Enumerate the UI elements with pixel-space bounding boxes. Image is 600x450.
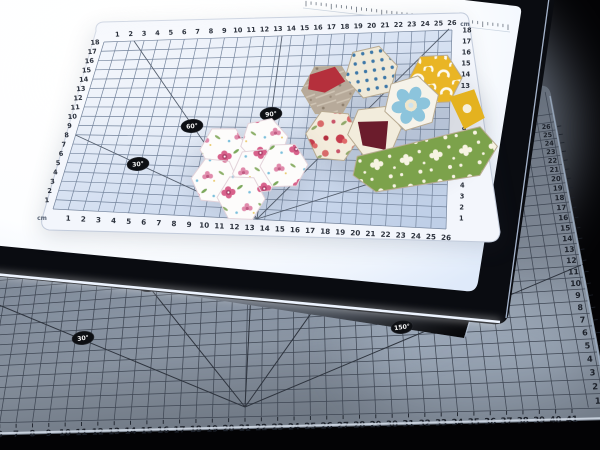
bottom-scale-number: 3 <box>96 215 101 224</box>
bottom-scale-number: 7 <box>156 218 161 227</box>
bottom-scale-number: 17 <box>173 425 185 435</box>
top-scale-number: 23 <box>407 20 417 28</box>
bottom-scale-number: 31 <box>402 419 414 429</box>
bottom-scale-number: 38 <box>517 416 529 426</box>
right-scale-number: 7 <box>580 315 586 324</box>
bottom-scale-number: 10 <box>59 428 71 438</box>
right-scale-number: 4 <box>587 354 594 364</box>
top-scale-number: 19 <box>354 22 364 30</box>
right-scale-number: 10 <box>570 279 582 289</box>
right-scale-number: 3 <box>589 367 596 377</box>
right-scale-number: 17 <box>556 203 566 213</box>
bottom-scale-number: 25 <box>304 422 316 432</box>
bottom-scale-number: 8 <box>29 429 35 439</box>
bottom-scale-number: 23 <box>396 231 406 240</box>
bottom-scale-number: 17 <box>305 226 315 235</box>
bottom-scale-number: 37 <box>500 417 512 427</box>
top-scale-number: 13 <box>273 25 283 33</box>
product-photo-scene: 6789101112131415161718192021222324252627… <box>0 0 600 450</box>
right-scale-number: 18 <box>554 193 564 203</box>
left-scale-number: 16 <box>85 57 95 66</box>
scale-tick <box>557 126 561 127</box>
angle-badge-label: 30° <box>132 160 144 169</box>
top-scale-number: 10 <box>233 26 243 34</box>
bottom-scale-number: 32 <box>419 419 431 429</box>
right-scale-number: 18 <box>462 27 472 35</box>
top-scale-number: 17 <box>327 23 337 31</box>
bottom-scale-number: 22 <box>380 230 390 239</box>
scale-tick <box>576 227 580 228</box>
top-scale-number: 24 <box>420 20 430 28</box>
bottom-scale-number: 7 <box>13 430 19 440</box>
scale-tick <box>585 271 589 272</box>
bottom-scale-number: 18 <box>320 227 330 236</box>
bottom-scale-number: 24 <box>411 231 421 240</box>
top-scale-number: 8 <box>209 27 214 35</box>
bottom-scale-number: 26 <box>321 421 333 431</box>
right-scale-number: 8 <box>577 303 583 312</box>
bottom-scale-number: 28 <box>353 421 365 431</box>
top-scale-number: 14 <box>287 24 297 32</box>
right-scale-number: 21 <box>549 166 559 174</box>
right-scale-number: 26 <box>542 123 552 131</box>
top-scale-number: 22 <box>394 21 404 29</box>
bottom-scale-number: 20 <box>222 424 234 434</box>
bottom-scale-number: 21 <box>365 229 375 238</box>
bottom-scale-number: 13 <box>108 427 120 437</box>
right-scale-number: 9 <box>575 291 581 300</box>
bottom-scale-number: 36 <box>484 417 496 427</box>
scale-tick <box>582 260 586 261</box>
unit-label-bottom: cm <box>37 215 47 222</box>
bottom-scale-number: 6 <box>0 430 3 440</box>
bottom-scale-number: 21 <box>239 424 251 434</box>
right-scale-number: 16 <box>462 49 472 57</box>
top-scale-number: 15 <box>300 24 310 32</box>
bottom-scale-number: 1 <box>66 214 71 223</box>
bottom-scale-number: 23 <box>272 423 284 433</box>
scale-tick <box>580 249 584 250</box>
bottom-scale-number: 5 <box>126 217 131 226</box>
right-scale-number: 15 <box>461 60 471 68</box>
bottom-scale-number: 18 <box>190 425 202 435</box>
top-scale-number: 25 <box>434 19 444 27</box>
left-scale-number: 13 <box>76 85 86 94</box>
bottom-scale-number: 33 <box>435 418 447 428</box>
bottom-scale-number: 27 <box>337 421 349 431</box>
right-scale-number: 13 <box>564 245 575 255</box>
right-scale-number: 20 <box>551 175 561 184</box>
right-scale-number: 3 <box>460 192 465 200</box>
scale-tick <box>562 151 566 152</box>
top-scale-number: 16 <box>313 23 323 31</box>
right-scale-number: 1 <box>459 214 464 222</box>
right-scale-number: 22 <box>548 157 558 165</box>
top-scale-number: 7 <box>195 28 200 36</box>
right-scale-number: 6 <box>582 327 589 337</box>
bottom-scale-number: 20 <box>350 228 360 237</box>
right-scale-number: 12 <box>566 256 577 266</box>
scale-tick <box>559 134 563 135</box>
top-scale-number: 9 <box>222 27 227 35</box>
left-scale-number: 12 <box>73 94 83 103</box>
scale-tick <box>574 217 578 218</box>
bottom-scale-number: 22 <box>255 423 267 433</box>
top-scale-number: 18 <box>340 23 350 31</box>
left-scale-number: 14 <box>79 75 89 84</box>
bottom-scale-number: 19 <box>335 227 345 236</box>
right-scale-number: 4 <box>460 181 465 189</box>
bottom-scale-number: 19 <box>206 424 218 434</box>
bottom-scale-number: 15 <box>275 224 285 233</box>
angle-badge-label: 60° <box>186 122 198 131</box>
bottom-scale-number: 29 <box>370 420 382 430</box>
left-scale-number: 10 <box>68 112 78 121</box>
scale-tick <box>567 178 571 179</box>
scale-tick <box>569 188 573 189</box>
bottom-scale-number: 13 <box>244 223 254 232</box>
bottom-scale-number: 14 <box>124 427 136 437</box>
bottom-scale-number: 26 <box>441 233 451 242</box>
bottom-scale-number: 14 <box>260 224 270 233</box>
bottom-scale-number: 11 <box>214 221 224 230</box>
bottom-scale-number: 16 <box>157 426 169 436</box>
bottom-scale-number: 12 <box>229 222 239 231</box>
top-scale-number: 12 <box>260 25 270 33</box>
scale-tick <box>560 142 564 143</box>
right-scale-number: 2 <box>459 203 464 211</box>
right-scale-number: 17 <box>462 38 472 46</box>
angle-badge-label: 30° <box>77 333 90 343</box>
top-scale-number: 6 <box>182 28 187 36</box>
top-scale-number: 2 <box>128 30 133 38</box>
right-scale-number: 15 <box>560 223 571 233</box>
bottom-scale-number: 9 <box>186 220 191 229</box>
scale-tick <box>573 207 577 208</box>
bottom-scale-number: 9 <box>46 429 52 439</box>
right-scale-number: 2 <box>592 381 599 391</box>
bottom-scale-number: 10 <box>199 221 209 230</box>
scale-tick <box>571 197 575 198</box>
bottom-scale-number: 11 <box>75 428 87 438</box>
scene-canvas: 6789101112131415161718192021222324252627… <box>0 0 600 450</box>
right-scale-number: 23 <box>546 148 556 156</box>
bottom-scale-number: 12 <box>92 427 104 437</box>
scale-tick <box>564 160 568 161</box>
bottom-scale-number: 4 <box>111 216 116 225</box>
right-scale-number: 11 <box>568 267 579 277</box>
top-scale-number: 1 <box>115 30 120 38</box>
bottom-scale-number: 30 <box>386 420 398 430</box>
top-scale-number: 21 <box>380 21 390 29</box>
bottom-scale-number: 8 <box>171 219 176 228</box>
left-scale-number: 18 <box>90 38 100 47</box>
right-scale-number: 5 <box>584 340 591 350</box>
scale-tick <box>594 320 598 321</box>
right-scale-number: 25 <box>543 131 553 139</box>
right-scale-number: 24 <box>545 139 555 147</box>
top-scale-number: 3 <box>142 30 147 38</box>
bottom-scale-number: 34 <box>451 418 463 428</box>
right-scale-number: 1 <box>595 397 600 407</box>
top-scale-number: 5 <box>168 29 173 37</box>
bottom-scale-number: 16 <box>290 225 300 234</box>
scale-tick <box>565 169 569 170</box>
bottom-scale-number: 15 <box>141 426 153 436</box>
top-scale-number: 11 <box>246 26 256 34</box>
bottom-scale-number: 2 <box>81 214 86 223</box>
scale-tick <box>589 295 593 296</box>
right-scale-number: 19 <box>553 184 563 193</box>
right-scale-number: 14 <box>562 234 573 244</box>
scale-tick <box>591 307 595 308</box>
right-scale-number: 16 <box>558 213 569 223</box>
left-scale-number: 17 <box>87 47 97 56</box>
scale-tick <box>587 283 591 284</box>
scale-tick <box>578 238 582 239</box>
angle-badge-label: 90° <box>265 110 277 119</box>
top-scale-number: 20 <box>367 22 377 30</box>
left-scale-number: 15 <box>82 66 92 75</box>
left-scale-number: 11 <box>70 103 80 112</box>
bottom-scale-number: 25 <box>426 232 436 241</box>
bottom-scale-number: 35 <box>468 417 480 427</box>
bottom-scale-number: 6 <box>141 218 146 227</box>
top-scale-number: 26 <box>447 19 457 27</box>
bottom-scale-number: 24 <box>288 422 300 432</box>
scale-tick <box>596 332 600 333</box>
top-scale-number: 4 <box>155 29 160 37</box>
